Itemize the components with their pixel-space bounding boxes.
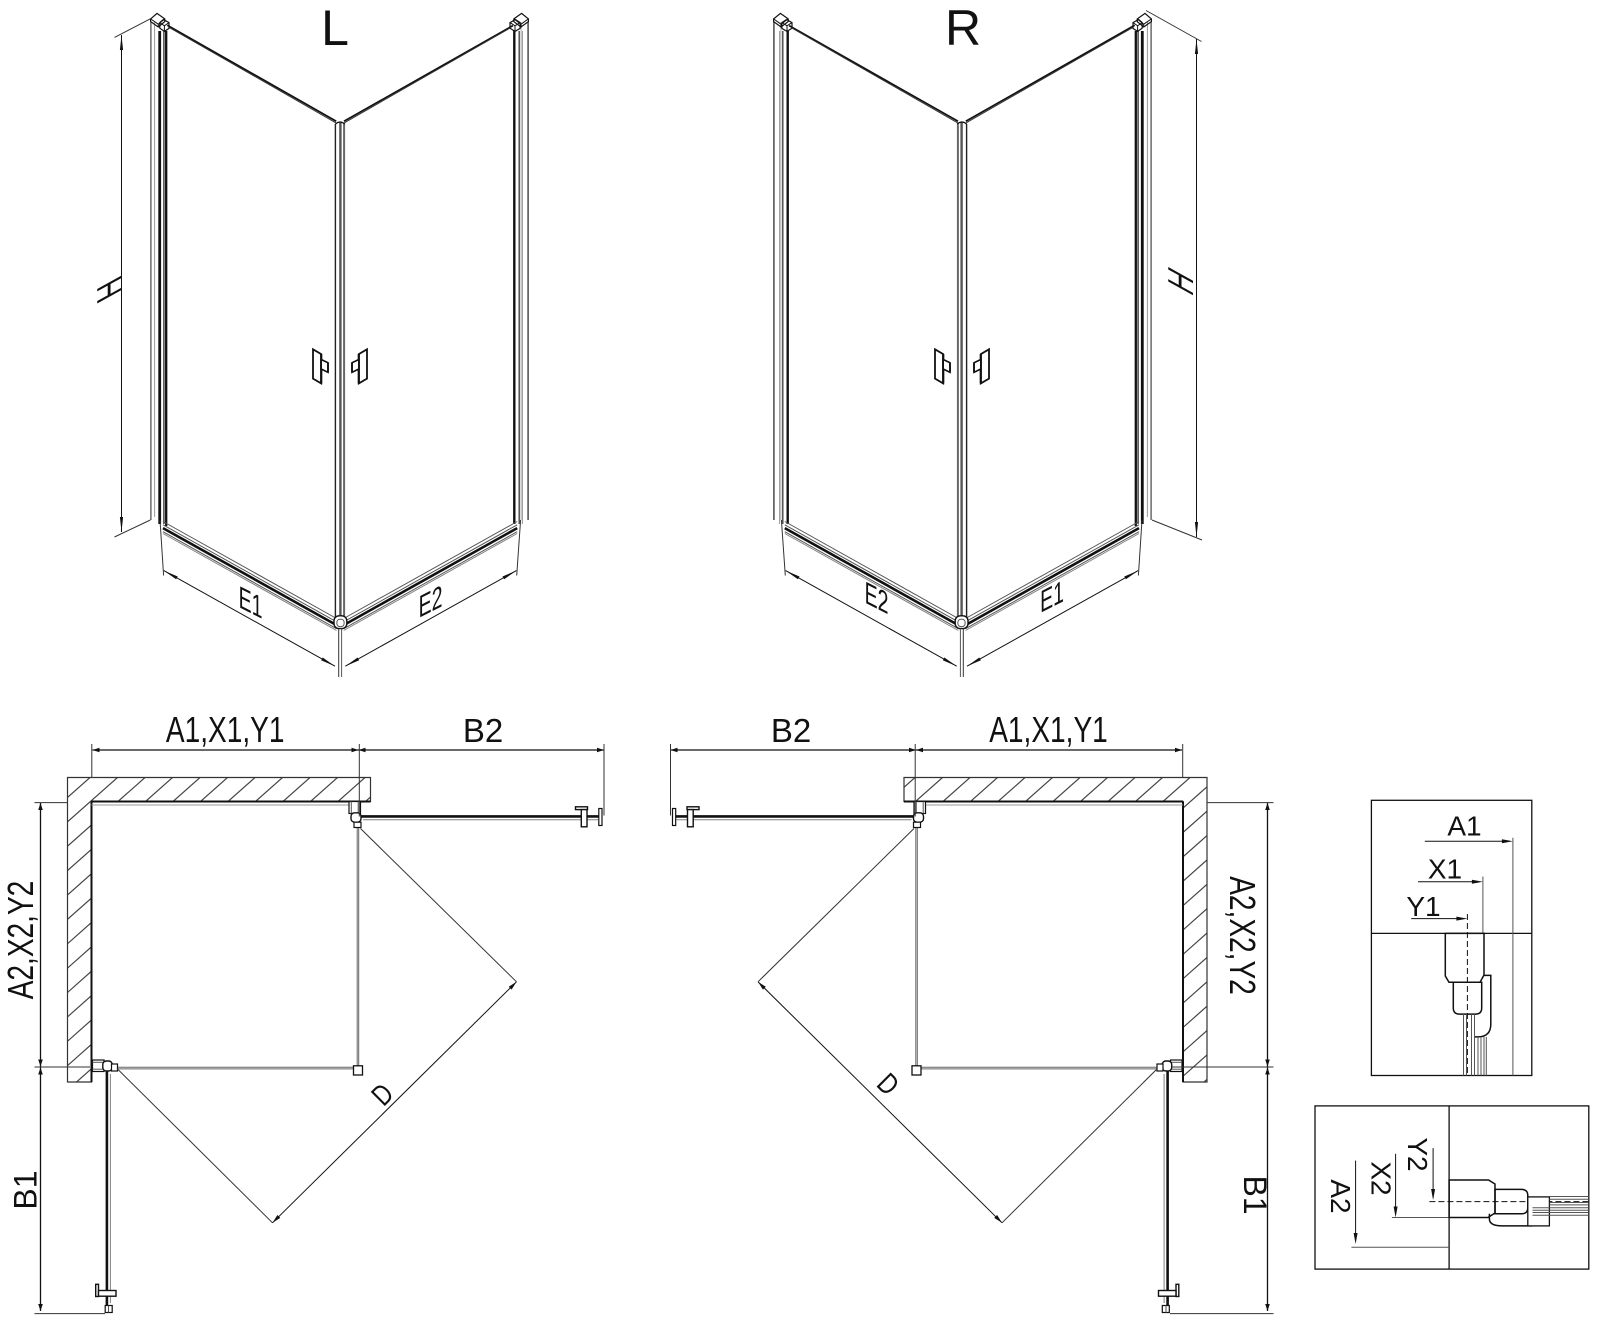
svg-text:L: L bbox=[321, 0, 349, 56]
svg-text:B2: B2 bbox=[771, 712, 811, 749]
svg-text:A2,X2,Y2: A2,X2,Y2 bbox=[1222, 876, 1262, 995]
svg-text:A2: A2 bbox=[1325, 1179, 1356, 1213]
svg-text:B1: B1 bbox=[1237, 1175, 1273, 1214]
svg-text:A1: A1 bbox=[1447, 811, 1481, 842]
svg-text:A1,X1,Y1: A1,X1,Y1 bbox=[166, 710, 285, 750]
svg-text:B1: B1 bbox=[8, 1170, 44, 1209]
svg-text:X1: X1 bbox=[1428, 854, 1462, 885]
svg-text:Y1: Y1 bbox=[1406, 891, 1440, 922]
svg-text:A2,X2,Y2: A2,X2,Y2 bbox=[1, 881, 41, 1000]
svg-text:R: R bbox=[945, 0, 981, 56]
svg-text:Y2: Y2 bbox=[1402, 1137, 1433, 1171]
svg-text:B2: B2 bbox=[463, 712, 503, 749]
svg-text:A1,X1,Y1: A1,X1,Y1 bbox=[989, 710, 1108, 750]
svg-text:X2: X2 bbox=[1366, 1161, 1397, 1195]
